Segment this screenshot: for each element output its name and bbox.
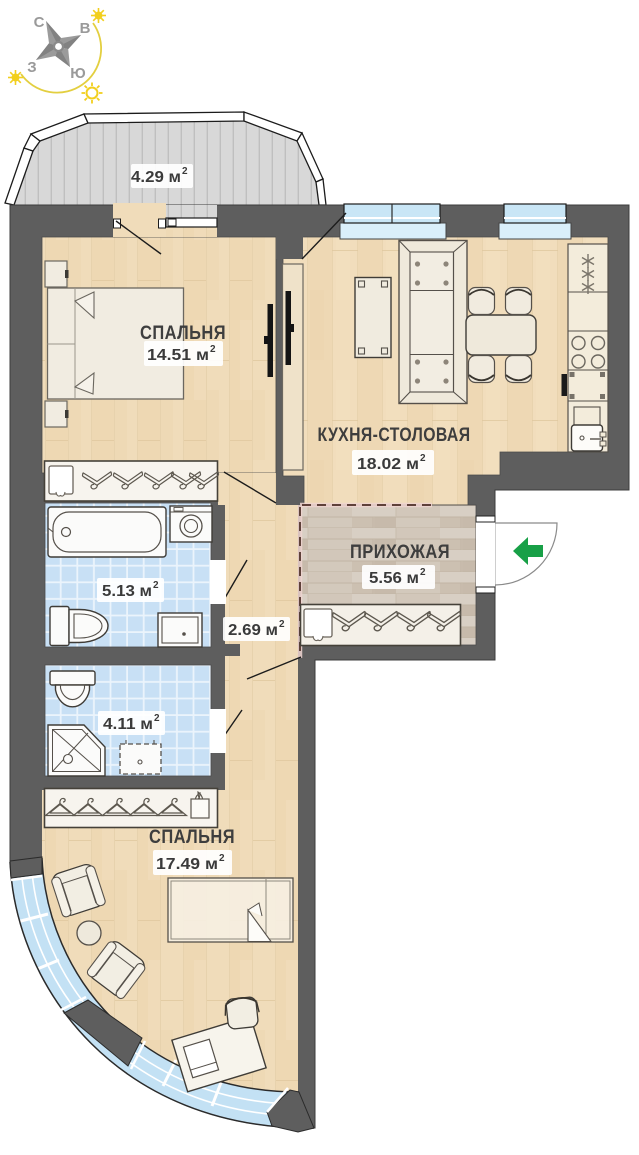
svg-text:18.02 м: 18.02 м	[357, 456, 419, 473]
svg-text:С: С	[34, 14, 45, 31]
svg-text:2: 2	[420, 567, 426, 578]
svg-text:В: В	[80, 20, 91, 37]
svg-text:2: 2	[154, 713, 160, 724]
svg-text:2: 2	[210, 344, 216, 355]
svg-text:СПАЛЬНЯ: СПАЛЬНЯ	[140, 323, 226, 344]
svg-text:4.29 м: 4.29 м	[131, 169, 181, 186]
svg-text:4.11 м: 4.11 м	[103, 716, 153, 733]
svg-text:СПАЛЬНЯ: СПАЛЬНЯ	[149, 827, 235, 848]
svg-text:2: 2	[182, 166, 188, 177]
svg-text:5.13 м: 5.13 м	[102, 583, 152, 600]
svg-text:З: З	[27, 59, 36, 76]
svg-text:5.56 м: 5.56 м	[369, 570, 419, 587]
svg-text:2: 2	[153, 580, 159, 591]
svg-text:Ю: Ю	[70, 65, 85, 82]
svg-text:2: 2	[420, 453, 426, 464]
svg-text:2: 2	[279, 619, 285, 630]
svg-text:17.49 м: 17.49 м	[156, 856, 218, 873]
svg-text:2: 2	[219, 853, 225, 864]
svg-text:2.69 м: 2.69 м	[228, 622, 278, 639]
svg-text:14.51 м: 14.51 м	[147, 347, 209, 364]
svg-text:КУХНЯ-СТОЛОВАЯ: КУХНЯ-СТОЛОВАЯ	[318, 425, 471, 446]
svg-text:ПРИХОЖАЯ: ПРИХОЖАЯ	[350, 542, 450, 563]
